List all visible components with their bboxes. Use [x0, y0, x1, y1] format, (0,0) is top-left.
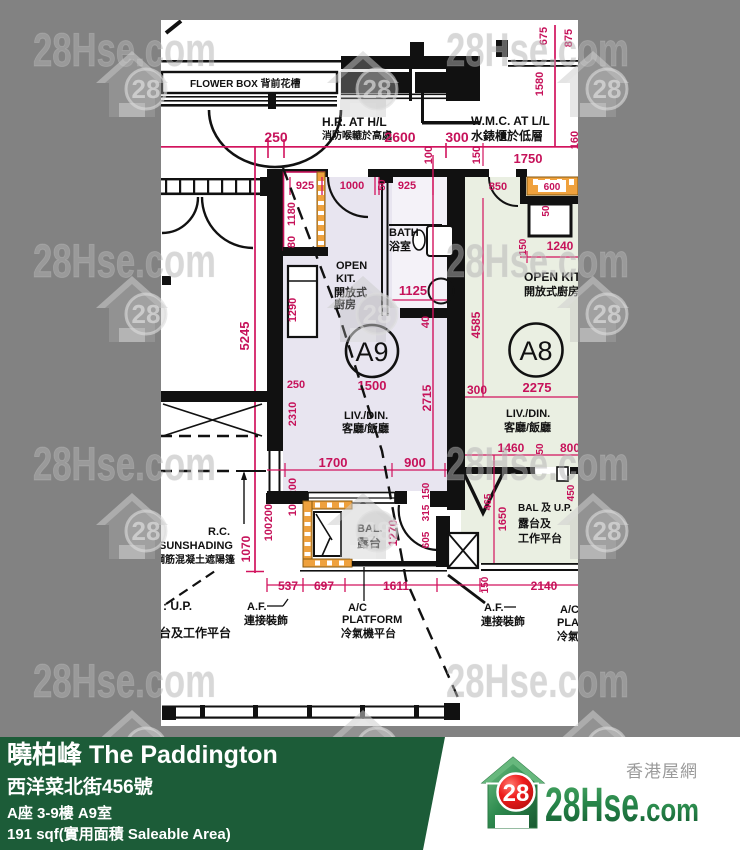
svg-text:2275: 2275 [523, 380, 552, 395]
svg-text:50: 50 [541, 205, 552, 217]
svg-text:925: 925 [296, 180, 314, 192]
svg-text:冷氣: 冷氣 [557, 629, 579, 643]
svg-text:A.F.: A.F. [247, 601, 267, 613]
svg-text:冷氣機平台: 冷氣機平台 [341, 626, 396, 640]
svg-text:SUNSHADING: SUNSHADING [159, 540, 233, 552]
svg-text:465: 465 [483, 493, 494, 510]
svg-text:150: 150 [480, 576, 491, 593]
svg-text:BAL 及 U.P.: BAL 及 U.P. [518, 502, 572, 514]
svg-text:2600: 2600 [384, 129, 415, 145]
svg-text:LIV./DIN.: LIV./DIN. [344, 410, 388, 422]
svg-text:850: 850 [489, 181, 507, 193]
svg-text:1000: 1000 [340, 180, 364, 192]
svg-text:A座 3-9樓 A9室: A座 3-9樓 A9室 [7, 804, 112, 822]
svg-text:LIV./DIN.: LIV./DIN. [506, 408, 550, 420]
svg-text:315: 315 [421, 504, 432, 521]
svg-text:5245: 5245 [237, 322, 252, 351]
svg-text:1125: 1125 [399, 283, 427, 298]
svg-text:消防喉轆於高處: 消防喉轆於高處 [322, 129, 393, 142]
svg-text:A8: A8 [519, 336, 552, 366]
svg-text:250: 250 [264, 129, 288, 145]
svg-text:FLOWER BOX 背前花槽: FLOWER BOX 背前花槽 [190, 77, 301, 90]
svg-text:1180: 1180 [286, 202, 298, 226]
svg-text:605: 605 [421, 531, 432, 548]
svg-text:28Hse.com: 28Hse.com [446, 234, 629, 287]
svg-text:300: 300 [445, 129, 469, 145]
svg-text:28Hse.com: 28Hse.com [446, 654, 629, 707]
svg-text:537: 537 [278, 579, 298, 593]
svg-text:水錶櫃於低層: 水錶櫃於低層 [471, 128, 543, 143]
svg-text:PLATFORM: PLATFORM [342, 614, 402, 626]
svg-text:客廳/飯廳: 客廳/飯廳 [341, 421, 389, 435]
svg-text:40: 40 [420, 316, 432, 328]
svg-text:1750: 1750 [514, 151, 543, 166]
svg-text:1290: 1290 [287, 298, 299, 322]
svg-text:80: 80 [286, 236, 298, 248]
svg-text:2715: 2715 [420, 384, 434, 411]
svg-text:28Hse.com: 28Hse.com [33, 654, 216, 707]
svg-text:.com: .com [639, 792, 699, 828]
svg-text:2140: 2140 [531, 579, 558, 593]
svg-text:191 sqf(實用面積 Saleable Area): 191 sqf(實用面積 Saleable Area) [7, 825, 231, 843]
svg-text:KIT.: KIT. [336, 273, 356, 285]
svg-text:150: 150 [421, 482, 432, 499]
svg-text:工作平台: 工作平台 [518, 531, 562, 545]
svg-text:900: 900 [404, 455, 426, 470]
svg-text:客廳/飯廳: 客廳/飯廳 [503, 420, 551, 434]
svg-text:曉柏峰 The Paddington: 曉柏峰 The Paddington [7, 740, 278, 769]
svg-text:28Hse.com: 28Hse.com [33, 234, 216, 287]
svg-text:OPEN: OPEN [336, 260, 367, 272]
svg-text:28Hse: 28Hse [545, 779, 639, 832]
svg-text:250: 250 [287, 379, 305, 391]
svg-text:台及工作平台: 台及工作平台 [159, 625, 231, 640]
svg-text:露台及: 露台及 [518, 516, 552, 530]
svg-text:925: 925 [398, 180, 416, 192]
svg-text:100: 100 [263, 523, 275, 541]
svg-text:R.C.: R.C. [208, 526, 230, 538]
svg-text:600: 600 [544, 182, 561, 193]
svg-text:A.F.: A.F. [484, 602, 504, 614]
svg-text:200: 200 [263, 504, 275, 522]
svg-text:: U.P.: : U.P. [163, 599, 192, 613]
svg-text:香港屋網: 香港屋網 [626, 762, 698, 781]
svg-text:1700: 1700 [319, 455, 348, 470]
svg-text:BATH: BATH [389, 227, 419, 239]
svg-text:150: 150 [471, 146, 483, 164]
svg-text:1070: 1070 [239, 535, 253, 562]
svg-text:697: 697 [314, 579, 334, 593]
svg-text:W.M.C. AT L/L: W.M.C. AT L/L [471, 114, 550, 128]
svg-text:鋼筋混凝土遮陽篷: 鋼筋混凝土遮陽篷 [154, 553, 236, 566]
svg-text:A/C: A/C [348, 602, 367, 614]
svg-text:28: 28 [503, 780, 530, 807]
svg-text:連接裝飾: 連接裝飾 [481, 614, 525, 628]
svg-text:4585: 4585 [469, 311, 483, 338]
svg-text:28Hse.com: 28Hse.com [446, 437, 629, 490]
svg-text:28Hse.com: 28Hse.com [33, 437, 216, 490]
svg-text:西洋菜北街456號: 西洋菜北街456號 [7, 775, 153, 798]
svg-text:300: 300 [467, 383, 487, 397]
svg-text:2310: 2310 [287, 402, 299, 426]
svg-text:1650: 1650 [497, 507, 509, 531]
svg-text:浴室: 浴室 [389, 239, 411, 253]
svg-text:連接裝飾: 連接裝飾 [244, 613, 288, 627]
svg-text:50: 50 [377, 179, 388, 191]
svg-text:A/C: A/C [560, 604, 579, 616]
svg-text:H.R. AT H/L: H.R. AT H/L [322, 115, 387, 129]
